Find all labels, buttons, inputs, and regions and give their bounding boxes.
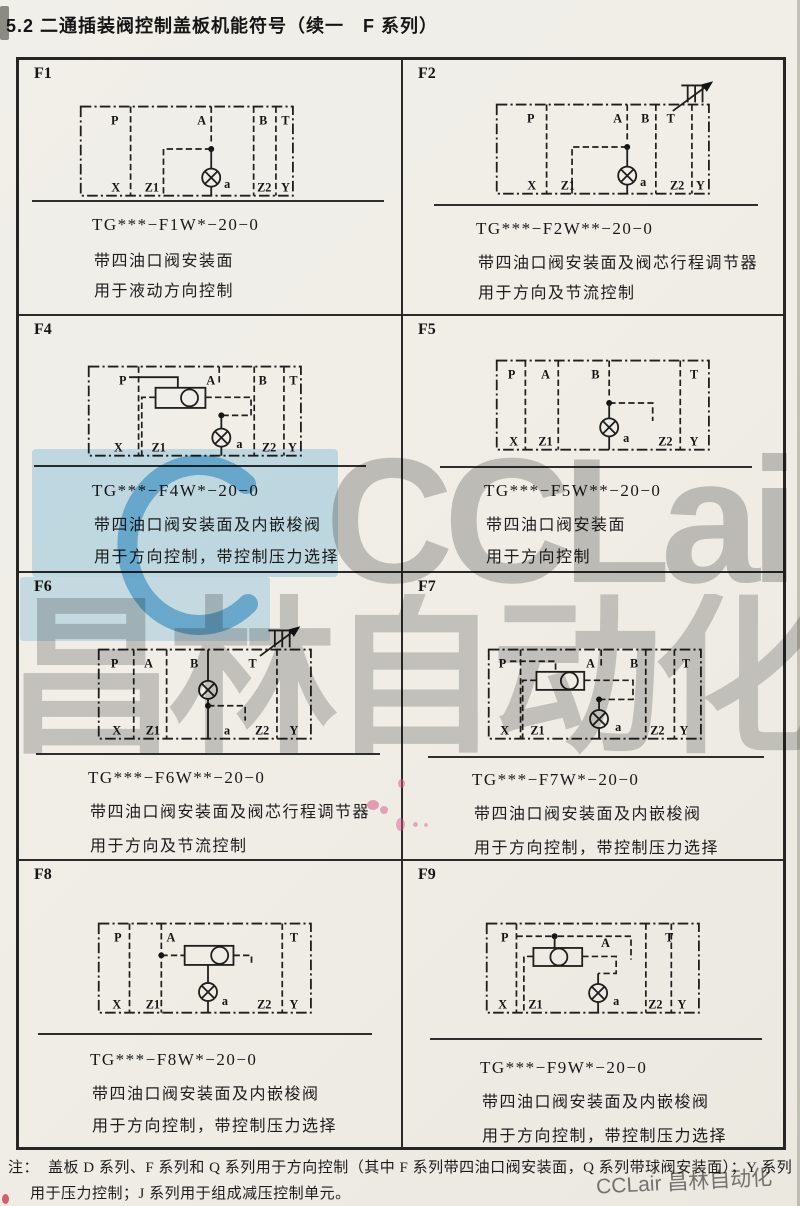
solenoid-icon [212,429,230,447]
port-label: T [665,931,673,945]
description-line-2: 用于液动方向控制 [94,277,234,301]
port-label: T [281,114,289,128]
cell-label: F2 [418,65,436,83]
separator [32,200,384,202]
port-label: B [259,374,267,388]
description-line-2: 用于方向控制，带控制压力选择 [94,543,339,567]
stroke-adjuster-icon [673,81,713,111]
port-label: a [224,723,230,737]
port-label: Y [281,180,290,194]
hydraulic-symbol-f5: P A B T X Z1 a Z2 Y [484,335,728,454]
separator [434,204,758,206]
port-label: Y [290,997,299,1011]
port-label: Z1 [561,178,575,192]
port-label: Z1 [528,997,542,1011]
port-label: A [541,368,550,382]
cell-f1: F1 P A B T X Z1 a Z2 Y TG***−F1W*−20−0 带… [16,57,400,313]
separator [38,1033,372,1035]
note-line-1: 盖板 D 系列、F 系列和 Q 系列用于方向控制（其中 F 系列带四油口阀安装面… [48,1156,792,1177]
hydraulic-symbol-f2: P A B T X Z1 a Z2 Y [484,79,728,198]
port-label: P [111,114,119,128]
description-line-2: 用于方向控制，带控制压力选择 [474,834,719,858]
pilot-line [208,706,245,721]
port-label: A [197,114,206,128]
port-label: T [289,374,297,388]
port-label: A [586,657,595,671]
hydraulic-symbol-f4: P A B T X Z1 a Z2 Y [76,341,320,460]
port-label: X [509,434,518,448]
cell-label: F6 [34,578,52,596]
port-label: Z1 [152,440,166,454]
description-line-1: 带四油口阀安装面及内嵌梭阀 [92,1080,320,1104]
cell-f2: F2 P A B T X Z1 a Z2 Y TG***−F2W**−20−0 … [400,57,786,313]
port-label: a [236,437,242,451]
description-line-1: 带四油口阀安装面 [94,247,234,271]
cell-f6: F6 P A B T X Z1 a Z2 Y TG***−F6W**−20−0 … [16,570,400,858]
shuttle-valve-icon [533,948,582,966]
port-label: Y [680,723,689,737]
port-label: a [224,177,230,191]
port-label: X [498,997,507,1011]
note-line-2: 用于压力控制；J 系列用于组成减压控制单元。 [30,1182,351,1203]
description-line-2: 用于方向控制，带控制压力选择 [482,1122,727,1146]
model-code: TG***−F7W*−20−0 [472,770,639,790]
description-line-2: 用于方向控制，带控制压力选择 [92,1112,337,1136]
cell-label: F8 [34,866,52,884]
port-label: Z1 [538,434,552,448]
port-label: A [206,374,215,388]
port-label: T [667,112,675,126]
cell-f7: F7 P A B T X Z1 a Z2 Y TG***−F7W*−20−0 带… [400,570,786,858]
port-label: P [501,931,509,945]
port-label: a [623,431,629,445]
port-label: X [111,180,120,194]
solenoid-icon [590,710,608,728]
port-label: Z2 [255,723,269,737]
port-label: Z2 [257,180,271,194]
model-code: TG***−F8W*−20−0 [90,1050,257,1070]
cell-label: F7 [418,578,436,596]
port-label: P [119,374,127,388]
port-label: P [111,657,119,671]
shuttle-valve-icon [156,388,206,408]
stroke-adjuster-icon [260,626,300,656]
port-label: T [248,657,256,671]
port-label: A [166,931,175,945]
model-code: TG***−F9W*−20−0 [480,1058,647,1078]
pilot-line [205,397,251,415]
port-label: P [527,112,535,126]
description-line-1: 带四油口阀安装面 [486,511,626,535]
shuttle-valve-icon [185,946,234,965]
solenoid-icon [589,984,607,1002]
solenoid-icon [199,681,217,699]
hydraulic-symbol-f1: P A B T X Z1 a Z2 Y [68,81,312,200]
port-label: Y [678,997,687,1011]
port-label: Y [288,440,297,454]
hydraulic-symbol-f9: P A T X Z1 a Z2 Y [474,898,718,1017]
port-label: Z1 [530,723,544,737]
shuttle-valve-icon [536,672,584,690]
port-label: B [591,368,599,382]
scanned-catalog-page: { "page": { "title": "5.2 二通插装阀控制盖板机能符号（… [0,0,800,1206]
port-label: T [682,657,690,671]
port-label: Y [696,178,705,192]
description-line-1: 带四油口阀安装面及阀芯行程调节器 [90,798,370,822]
model-code: TG***−F5W**−20−0 [484,481,661,501]
cell-label: F1 [34,65,52,83]
model-code: TG***−F1W*−20−0 [92,215,259,235]
port-label: B [190,657,198,671]
description-line-1: 带四油口阀安装面及内嵌梭阀 [94,511,322,535]
model-code: TG***−F6W**−20−0 [88,768,265,788]
port-label: T [290,931,298,945]
port-label: Z2 [257,997,271,1011]
separator [430,1038,762,1040]
description-line-2: 用于方向控制 [486,543,591,567]
port-label: B [259,114,267,128]
port-label: X [500,723,509,737]
note-label: 注： [8,1156,39,1177]
cell-f5: F5 P A B T X Z1 a Z2 Y TG***−F5W**−20−0 … [400,313,786,570]
cell-f4: F4 P A B T X Z1 a Z2 Y TG***−F4W*−20−0 带… [16,313,400,570]
solenoid-icon [202,169,220,187]
port-label: a [613,994,619,1008]
port-label: Z2 [650,723,664,737]
hydraulic-symbol-f7: P A B T X Z1 a Z2 Y [476,624,720,743]
port-label: Z2 [670,178,684,192]
ink-stain [2,1194,9,1204]
separator [34,465,366,467]
port-label: X [112,723,121,737]
cell-label: F5 [418,321,436,339]
port-label: A [601,936,610,950]
port-label: a [615,720,621,734]
port-label: B [641,112,649,126]
port-label: Y [290,723,299,737]
solenoid-icon [199,983,217,1001]
port-label: P [508,368,516,382]
port-label: Y [690,434,699,448]
pilot-line [584,680,633,699]
port-label: a [222,994,228,1008]
model-code: TG***−F4W*−20−0 [92,481,259,501]
page-title: 5.2 二通插装阀控制盖板机能符号（续一 F 系列） [6,12,438,38]
cell-label: F4 [34,321,52,339]
cell-f8: F8 P A T X Z1 a Z2 Y TG***−F8W*−20−0 带四油… [16,858,400,1150]
cell-f9: F9 P A T X Z1 a Z2 Y TG***−F9W*−20−0 带四油… [400,858,786,1150]
port-label: X [527,178,536,192]
hydraulic-symbol-f8: P A T X Z1 a Z2 Y [86,898,330,1017]
port-label: Z2 [262,440,276,454]
port-label: X [112,997,121,1011]
port-label: X [114,440,123,454]
hydraulic-symbol-f6: P A B T X Z1 a Z2 Y [86,624,330,743]
port-label: A [144,657,153,671]
port-label: Z1 [146,997,160,1011]
port-label: P [114,931,122,945]
pilot-line [233,955,251,965]
cell-label: F9 [418,866,436,884]
port-label: a [640,175,646,189]
port-label: P [499,657,507,671]
port-label: Z2 [658,434,672,448]
port-label: A [613,112,622,126]
model-code: TG***−F2W**−20−0 [476,219,653,239]
description-line-2: 用于方向及节流控制 [478,279,636,303]
description-line-1: 带四油口阀安装面及内嵌梭阀 [482,1088,710,1112]
port-label: T [690,368,698,382]
description-line-1: 带四油口阀安装面及内嵌梭阀 [474,800,702,824]
pilot-line [609,403,652,421]
port-label: Z1 [145,180,159,194]
description-line-1: 带四油口阀安装面及阀芯行程调节器 [478,249,758,273]
port-label: Z1 [146,723,160,737]
separator [36,753,380,755]
port-label: Z2 [648,997,662,1011]
description-line-2: 用于方向及节流控制 [90,832,248,856]
solenoid-icon [600,418,618,436]
separator [440,466,752,468]
port-label: B [630,657,638,671]
separator [428,756,764,758]
solenoid-icon [618,167,636,185]
